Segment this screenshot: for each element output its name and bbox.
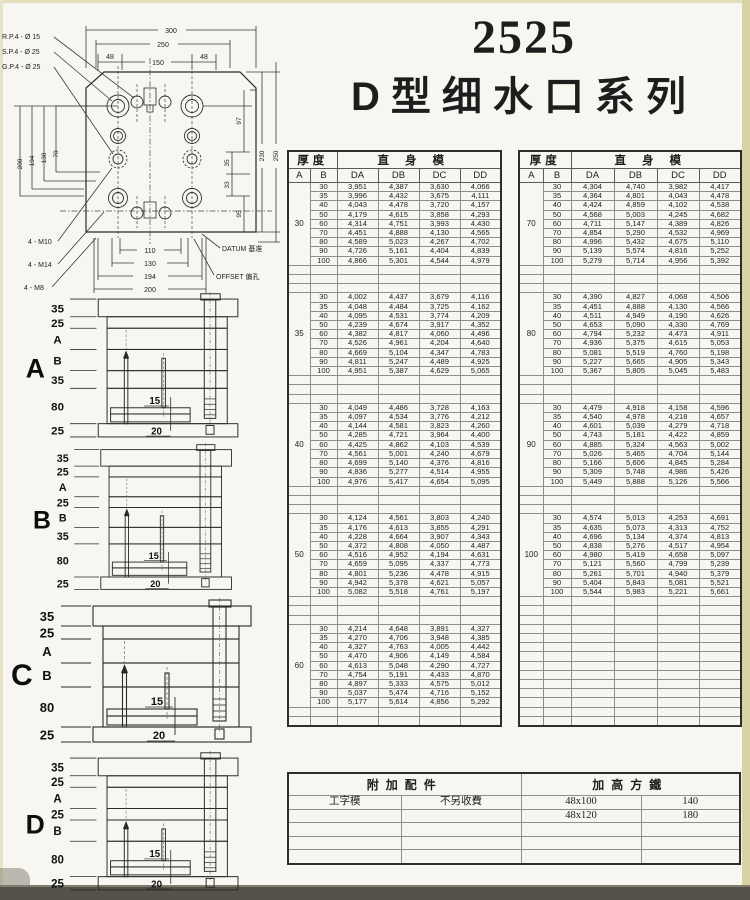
dimension-value: 4,816 bbox=[657, 247, 699, 256]
dimension-value: 4,111 bbox=[460, 192, 501, 201]
dimension-value: 4,679 bbox=[460, 449, 501, 458]
dim-250: 250 bbox=[157, 42, 169, 49]
dimension-value: 3,630 bbox=[419, 183, 460, 192]
empty-cell bbox=[460, 376, 501, 385]
empty-cell bbox=[614, 284, 657, 293]
empty-cell bbox=[699, 698, 741, 707]
thickness-a-value: 35 bbox=[288, 293, 310, 376]
thickness-b-value: 35 bbox=[310, 523, 337, 532]
stack-dim-label: 35 bbox=[40, 609, 54, 624]
stack-dim-label: A bbox=[53, 334, 61, 346]
dimension-value: 4,565 bbox=[460, 229, 501, 238]
dimension-value: 5,012 bbox=[460, 679, 501, 688]
thickness-b-value: 90 bbox=[310, 689, 337, 698]
dimension-value: 4,760 bbox=[657, 348, 699, 357]
dimension-value: 4,675 bbox=[657, 238, 699, 247]
empty-cell bbox=[657, 376, 699, 385]
dimension-value: 4,534 bbox=[378, 413, 419, 422]
dimension-value: 4,544 bbox=[419, 256, 460, 265]
thickness-b-value: 100 bbox=[310, 698, 337, 707]
empty-cell bbox=[614, 615, 657, 624]
empty-cell bbox=[288, 809, 401, 823]
empty-cell bbox=[657, 698, 699, 707]
empty-cell bbox=[699, 597, 741, 606]
dimension-value: 5,379 bbox=[699, 569, 741, 578]
dimension-value: 4,629 bbox=[419, 367, 460, 376]
empty-cell bbox=[543, 661, 571, 670]
empty-cell bbox=[519, 707, 543, 716]
empty-cell bbox=[337, 394, 378, 403]
empty-cell bbox=[378, 505, 419, 514]
dimension-value: 5,227 bbox=[571, 357, 614, 366]
empty-cell bbox=[641, 823, 740, 837]
empty-cell bbox=[614, 633, 657, 642]
plate-35 bbox=[93, 606, 251, 626]
empty-cell bbox=[337, 716, 378, 726]
empty-cell bbox=[614, 606, 657, 615]
dimension-value: 5,003 bbox=[614, 210, 657, 219]
empty-cell bbox=[460, 707, 501, 716]
dimension-value: 4,479 bbox=[571, 403, 614, 412]
dimension-value: 5,110 bbox=[699, 238, 741, 247]
empty-cell bbox=[519, 495, 543, 504]
col-header-b: B bbox=[543, 169, 571, 183]
col-header-dd: DD bbox=[460, 169, 501, 183]
thickness-b-value: 40 bbox=[543, 422, 571, 431]
empty-cell bbox=[543, 679, 571, 688]
thickness-b-value: 35 bbox=[543, 413, 571, 422]
dimension-value: 4,372 bbox=[337, 541, 378, 550]
dimension-value: 4,783 bbox=[460, 348, 501, 357]
dimension-value: 4,389 bbox=[657, 219, 699, 228]
dimension-value: 4,212 bbox=[460, 413, 501, 422]
empty-cell bbox=[657, 495, 699, 504]
empty-cell bbox=[699, 707, 741, 716]
empty-cell bbox=[288, 284, 310, 293]
dimension-value: 5,121 bbox=[571, 560, 614, 569]
dimension-value: 5,197 bbox=[460, 587, 501, 596]
empty-cell bbox=[519, 679, 543, 688]
empty-cell bbox=[571, 679, 614, 688]
dimension-value: 4,478 bbox=[699, 192, 741, 201]
thickness-b-value: 50 bbox=[310, 652, 337, 661]
dimension-value: 4,343 bbox=[460, 532, 501, 541]
dimension-value: 4,162 bbox=[460, 302, 501, 311]
dimension-value: 4,194 bbox=[419, 551, 460, 560]
dimension-value: 4,961 bbox=[378, 339, 419, 348]
empty-cell bbox=[460, 385, 501, 394]
empty-cell bbox=[310, 495, 337, 504]
dimension-value: 4,561 bbox=[378, 514, 419, 523]
thickness-b-value: 60 bbox=[310, 219, 337, 228]
dimension-value: 4,043 bbox=[657, 192, 699, 201]
thickness-b-value: 35 bbox=[310, 302, 337, 311]
label-gp4: G.P.4 - Ø 25 bbox=[2, 64, 40, 71]
mold-section-c-drawing: 3525AB8025C1520 bbox=[6, 598, 270, 750]
plate-25 bbox=[109, 466, 221, 477]
dimension-value: 5,417 bbox=[378, 477, 419, 486]
empty-cell bbox=[614, 597, 657, 606]
thickness-b-value: 50 bbox=[310, 321, 337, 330]
thickness-b-value: 35 bbox=[310, 413, 337, 422]
dim-48-left: 48 bbox=[106, 54, 114, 61]
empty-cell bbox=[614, 495, 657, 504]
dimension-value: 4,313 bbox=[657, 523, 699, 532]
empty-cell bbox=[288, 707, 310, 716]
empty-cell bbox=[288, 823, 401, 837]
thickness-b-value: 30 bbox=[310, 183, 337, 192]
empty-cell bbox=[337, 265, 378, 274]
dimension-value: 4,996 bbox=[571, 238, 614, 247]
empty-cell bbox=[614, 376, 657, 385]
dimension-value: 5,152 bbox=[460, 689, 501, 698]
empty-cell bbox=[337, 376, 378, 385]
empty-cell bbox=[571, 394, 614, 403]
dimension-value: 5,465 bbox=[614, 449, 657, 458]
stack-dim-label: 35 bbox=[57, 453, 69, 465]
empty-cell bbox=[657, 615, 699, 624]
dimension-value: 4,648 bbox=[378, 624, 419, 633]
empty-cell bbox=[460, 486, 501, 495]
dimension-value: 4,190 bbox=[657, 311, 699, 320]
dimension-value: 4,442 bbox=[460, 643, 501, 652]
dimension-value: 4,417 bbox=[699, 183, 741, 192]
empty-cell bbox=[543, 633, 571, 642]
thickness-b-value: 70 bbox=[310, 449, 337, 458]
stack-dim-label: 80 bbox=[40, 700, 54, 715]
empty-cell bbox=[419, 385, 460, 394]
ejector-pin-tip bbox=[124, 508, 130, 515]
empty-cell bbox=[657, 486, 699, 495]
plate-35 bbox=[107, 371, 227, 389]
accessory-value: 48x120 bbox=[521, 809, 641, 823]
stack-dim-label: 25 bbox=[57, 578, 69, 590]
dimension-value: 5,714 bbox=[614, 256, 657, 265]
section-c-diagram: 3525AB8025C1520 bbox=[6, 598, 270, 750]
dimension-value: 4,613 bbox=[378, 523, 419, 532]
dimension-value: 5,082 bbox=[337, 587, 378, 596]
dimension-value: 4,862 bbox=[378, 440, 419, 449]
dimension-value: 4,811 bbox=[337, 357, 378, 366]
dimension-value: 5,292 bbox=[460, 698, 501, 707]
dimension-value: 5,181 bbox=[614, 431, 657, 440]
dim-200: 200 bbox=[17, 158, 24, 169]
empty-cell bbox=[419, 275, 460, 284]
thickness-b-value: 30 bbox=[543, 403, 571, 412]
empty-cell bbox=[543, 495, 571, 504]
thickness-b-value: 40 bbox=[310, 532, 337, 541]
empty-cell bbox=[571, 505, 614, 514]
dimension-value: 4,955 bbox=[460, 468, 501, 477]
dimension-value: 4,390 bbox=[571, 293, 614, 302]
dimension-value: 4,653 bbox=[571, 321, 614, 330]
ejector-base-plate bbox=[111, 414, 191, 422]
dimension-value: 4,158 bbox=[657, 403, 699, 412]
thickness-b-value: 70 bbox=[543, 449, 571, 458]
guide-holes bbox=[107, 95, 203, 219]
dimension-value: 4,657 bbox=[699, 413, 741, 422]
dimension-value: 5,002 bbox=[699, 440, 741, 449]
empty-cell bbox=[460, 606, 501, 615]
dimension-value: 4,517 bbox=[657, 541, 699, 550]
dimension-value: 4,163 bbox=[460, 403, 501, 412]
dimension-value: 5,301 bbox=[378, 256, 419, 265]
dimension-value: 4,179 bbox=[337, 210, 378, 219]
col-header-dd: DD bbox=[699, 169, 741, 183]
ejector-retainer-plate bbox=[112, 562, 186, 568]
thickness-b-value: 100 bbox=[543, 256, 571, 265]
plate-25 bbox=[103, 626, 239, 639]
empty-cell bbox=[614, 643, 657, 652]
dim-130: 130 bbox=[41, 152, 48, 163]
stack-dim-label: A bbox=[42, 644, 52, 659]
thickness-b-value: 90 bbox=[310, 357, 337, 366]
thickness-b-value: 90 bbox=[310, 578, 337, 587]
empty-cell bbox=[519, 486, 543, 495]
ejector-retainer-plate bbox=[107, 709, 197, 716]
empty-cell bbox=[310, 394, 337, 403]
dimension-value: 4,827 bbox=[614, 293, 657, 302]
empty-cell bbox=[614, 486, 657, 495]
empty-cell bbox=[288, 394, 310, 403]
stack-dim-label: A bbox=[53, 793, 61, 805]
thickness-b-value: 80 bbox=[310, 459, 337, 468]
empty-cell bbox=[519, 689, 543, 698]
dimension-value: 4,066 bbox=[460, 183, 501, 192]
accessory-value: 180 bbox=[641, 809, 740, 823]
dimension-value: 5,073 bbox=[614, 523, 657, 532]
empty-cell bbox=[419, 716, 460, 726]
dimension-value: 4,718 bbox=[699, 422, 741, 431]
dimension-value: 4,635 bbox=[571, 523, 614, 532]
accessory-value: 140 bbox=[641, 796, 740, 810]
empty-cell bbox=[337, 275, 378, 284]
dimension-value: 4,314 bbox=[337, 219, 378, 228]
dimension-value: 4,952 bbox=[378, 551, 419, 560]
empty-cell bbox=[699, 689, 741, 698]
dimension-value: 5,140 bbox=[378, 459, 419, 468]
dimension-value: 5,276 bbox=[614, 541, 657, 550]
dimension-value: 4,478 bbox=[419, 569, 460, 578]
dimension-value: 4,885 bbox=[571, 440, 614, 449]
dimension-value: 5,097 bbox=[699, 551, 741, 560]
empty-cell bbox=[310, 615, 337, 624]
inner-dim-15: 15 bbox=[149, 849, 160, 860]
dimension-value: 4,470 bbox=[337, 652, 378, 661]
plate-25 bbox=[98, 424, 238, 437]
empty-cell bbox=[543, 716, 571, 726]
col-header-a: A bbox=[288, 169, 310, 183]
empty-cell bbox=[543, 265, 571, 274]
empty-cell bbox=[460, 495, 501, 504]
empty-cell bbox=[657, 689, 699, 698]
dimension-value: 4,906 bbox=[378, 652, 419, 661]
stack-dim-label: 80 bbox=[51, 854, 64, 866]
thickness-b-value: 60 bbox=[310, 661, 337, 670]
empty-cell bbox=[419, 495, 460, 504]
dimension-value: 4,149 bbox=[419, 652, 460, 661]
thickness-b-value: 90 bbox=[543, 578, 571, 587]
empty-cell bbox=[657, 394, 699, 403]
empty-cell bbox=[571, 670, 614, 679]
empty-cell bbox=[519, 633, 543, 642]
stack-dim-label: 25 bbox=[51, 810, 64, 822]
empty-cell bbox=[571, 376, 614, 385]
thickness-a-value: 70 bbox=[519, 183, 543, 266]
dimension-value: 4,124 bbox=[337, 514, 378, 523]
empty-cell bbox=[614, 505, 657, 514]
dimension-value: 5,095 bbox=[378, 560, 419, 569]
dimension-value: 5,661 bbox=[699, 587, 741, 596]
dimension-value: 4,954 bbox=[699, 541, 741, 550]
empty-cell bbox=[657, 652, 699, 661]
dim-33: 33 bbox=[224, 181, 231, 189]
thickness-b-value: 80 bbox=[310, 569, 337, 578]
stack-dim-label: 25 bbox=[51, 426, 64, 438]
dimension-value: 3,679 bbox=[419, 293, 460, 302]
label-rp4: R.P.4 - Ø 15 bbox=[2, 34, 40, 41]
empty-cell bbox=[699, 505, 741, 514]
empty-cell bbox=[614, 707, 657, 716]
empty-cell bbox=[460, 505, 501, 514]
empty-cell bbox=[378, 394, 419, 403]
empty-cell bbox=[288, 495, 310, 504]
empty-cell bbox=[419, 597, 460, 606]
empty-cell bbox=[543, 486, 571, 495]
empty-cell bbox=[699, 486, 741, 495]
dimension-value: 4,674 bbox=[378, 321, 419, 330]
dimension-value: 4,385 bbox=[460, 633, 501, 642]
dimension-value: 5,387 bbox=[378, 367, 419, 376]
dimension-value: 4,130 bbox=[419, 229, 460, 238]
dimension-value: 4,566 bbox=[699, 302, 741, 311]
scan-edge-right bbox=[742, 0, 750, 900]
dimension-value: 4,267 bbox=[419, 238, 460, 247]
dimension-value: 4,752 bbox=[699, 523, 741, 532]
dimension-value: 4,404 bbox=[419, 247, 460, 256]
empty-cell bbox=[378, 265, 419, 274]
dimension-value: 5,519 bbox=[614, 348, 657, 357]
thickness-b-value: 30 bbox=[310, 514, 337, 523]
empty-cell bbox=[419, 284, 460, 293]
dimension-value: 4,285 bbox=[337, 431, 378, 440]
empty-cell bbox=[699, 716, 741, 726]
dimension-value: 5,198 bbox=[699, 348, 741, 357]
dimension-value: 4,589 bbox=[337, 238, 378, 247]
stack-dim-label: 25 bbox=[51, 777, 64, 789]
dimension-value: 4,581 bbox=[378, 422, 419, 431]
dimension-value: 4,813 bbox=[699, 532, 741, 541]
dimension-value: 4,516 bbox=[337, 551, 378, 560]
dimension-value: 4,253 bbox=[657, 514, 699, 523]
dimension-value: 4,769 bbox=[699, 321, 741, 330]
support-screw bbox=[206, 425, 214, 434]
stack-dim-label: 35 bbox=[51, 303, 64, 315]
empty-cell bbox=[571, 606, 614, 615]
inner-dim-20: 20 bbox=[150, 579, 160, 589]
dimension-value: 5,236 bbox=[378, 569, 419, 578]
dim-194b: 194 bbox=[144, 274, 156, 281]
dimension-value: 4,532 bbox=[657, 229, 699, 238]
empty-cell bbox=[310, 265, 337, 274]
dimension-value: 4,691 bbox=[699, 514, 741, 523]
dim-48-right: 48 bbox=[200, 54, 208, 61]
plate-35 bbox=[101, 450, 232, 467]
dimension-value: 4,240 bbox=[460, 514, 501, 523]
empty-cell bbox=[699, 385, 741, 394]
empty-cell bbox=[519, 505, 543, 514]
thickness-b-value: 70 bbox=[310, 339, 337, 348]
empty-cell bbox=[460, 265, 501, 274]
thickness-b-value: 60 bbox=[543, 440, 571, 449]
col-header-db: DB bbox=[378, 169, 419, 183]
dimension-value: 5,483 bbox=[699, 367, 741, 376]
dimension-value: 4,949 bbox=[614, 311, 657, 320]
empty-cell bbox=[519, 624, 543, 633]
dimension-value: 4,905 bbox=[657, 357, 699, 366]
plate-B bbox=[107, 820, 227, 841]
ejector-pin bbox=[123, 673, 127, 727]
dimension-value: 4,228 bbox=[337, 532, 378, 541]
thickness-b-value: 100 bbox=[310, 256, 337, 265]
empty-cell bbox=[657, 606, 699, 615]
dimension-value: 5,139 bbox=[571, 247, 614, 256]
dimension-value: 4,293 bbox=[460, 210, 501, 219]
dimension-value: 3,982 bbox=[657, 183, 699, 192]
dimension-value: 4,240 bbox=[419, 449, 460, 458]
empty-cell bbox=[543, 643, 571, 652]
dimension-value: 4,279 bbox=[657, 422, 699, 431]
dimension-value: 4,716 bbox=[419, 689, 460, 698]
empty-cell bbox=[543, 376, 571, 385]
empty-cell bbox=[699, 643, 741, 652]
thickness-b-value: 60 bbox=[310, 440, 337, 449]
dimension-value: 4,575 bbox=[419, 679, 460, 688]
accessory-value: 48x100 bbox=[521, 796, 641, 810]
empty-cell bbox=[641, 850, 740, 864]
dimension-value: 4,838 bbox=[571, 541, 614, 550]
thickness-b-value: 70 bbox=[310, 560, 337, 569]
dimension-value: 4,489 bbox=[419, 357, 460, 366]
empty-cell bbox=[288, 385, 310, 394]
empty-cell bbox=[310, 606, 337, 615]
dimension-value: 4,050 bbox=[419, 541, 460, 550]
stack-dim-label: 25 bbox=[57, 497, 69, 509]
dimension-value: 3,725 bbox=[419, 302, 460, 311]
accessory-value: 不另收費 bbox=[401, 796, 521, 810]
empty-cell bbox=[519, 265, 543, 274]
dimension-value: 4,352 bbox=[460, 321, 501, 330]
empty-cell bbox=[378, 716, 419, 726]
thickness-b-value: 80 bbox=[543, 348, 571, 357]
return-pin bbox=[162, 358, 166, 407]
thickness-b-value: 80 bbox=[543, 569, 571, 578]
dimension-value: 4,659 bbox=[337, 560, 378, 569]
dim-194: 194 bbox=[29, 155, 36, 166]
dimension-value: 4,239 bbox=[337, 321, 378, 330]
dimension-value: 3,858 bbox=[419, 210, 460, 219]
dimension-value: 5,023 bbox=[378, 238, 419, 247]
empty-cell bbox=[657, 265, 699, 274]
section-letter: C bbox=[11, 659, 33, 692]
dimension-value: 4,048 bbox=[337, 302, 378, 311]
dimension-value: 4,682 bbox=[699, 210, 741, 219]
dimension-value: 4,486 bbox=[378, 403, 419, 412]
dim-300: 300 bbox=[165, 28, 177, 35]
empty-cell bbox=[699, 615, 741, 624]
dimension-value: 4,669 bbox=[337, 348, 378, 357]
empty-cell bbox=[699, 652, 741, 661]
